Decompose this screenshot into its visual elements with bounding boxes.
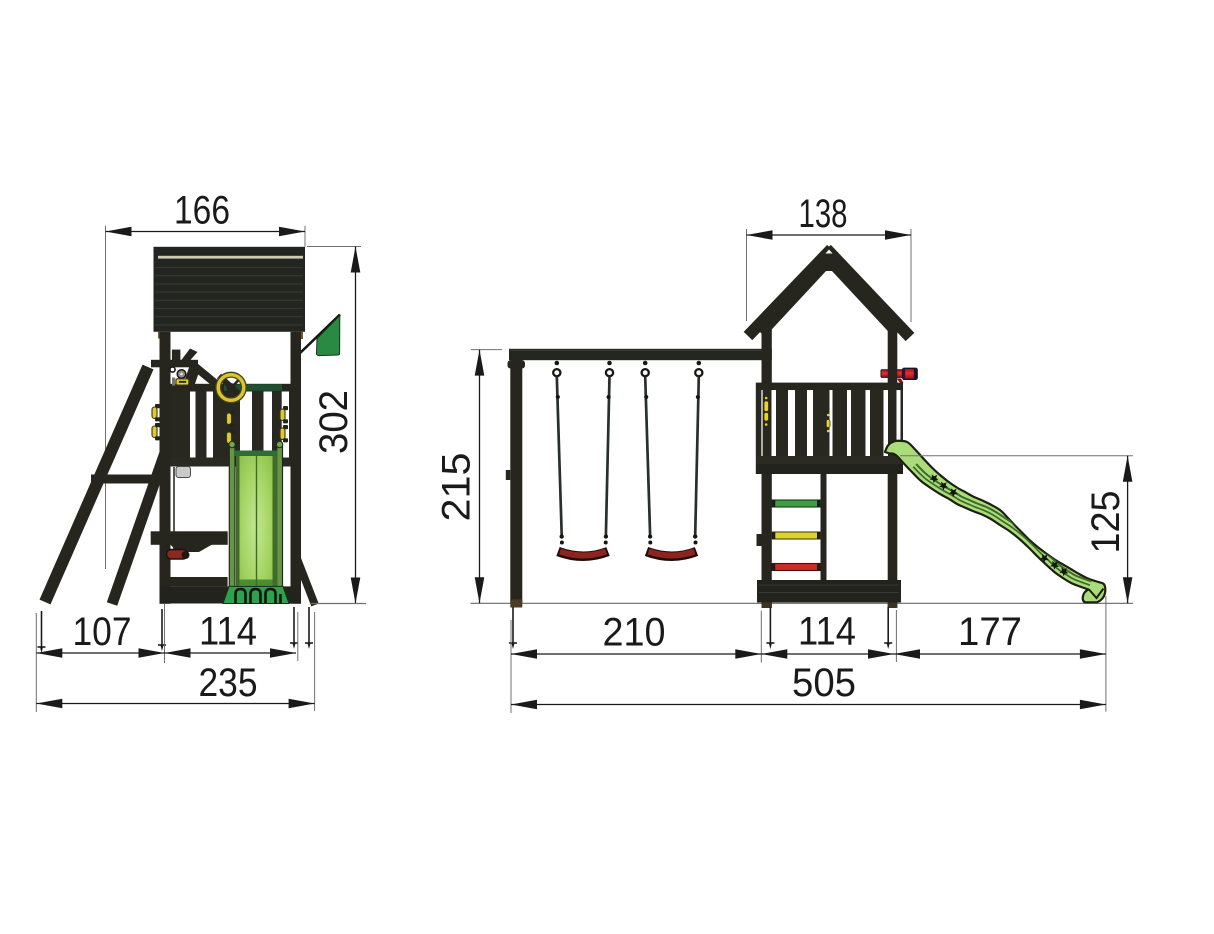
svg-text:210: 210 [603,611,666,655]
svg-text:177: 177 [958,610,1022,654]
svg-text:166: 166 [174,189,230,233]
svg-text:107: 107 [73,610,132,654]
svg-text:505: 505 [792,661,856,705]
svg-text:114: 114 [798,610,856,654]
svg-text:125: 125 [1084,491,1128,554]
svg-text:215: 215 [435,453,479,522]
svg-text:114: 114 [199,610,257,654]
svg-text:235: 235 [199,661,258,705]
svg-text:302: 302 [312,390,356,454]
svg-text:138: 138 [799,192,848,236]
